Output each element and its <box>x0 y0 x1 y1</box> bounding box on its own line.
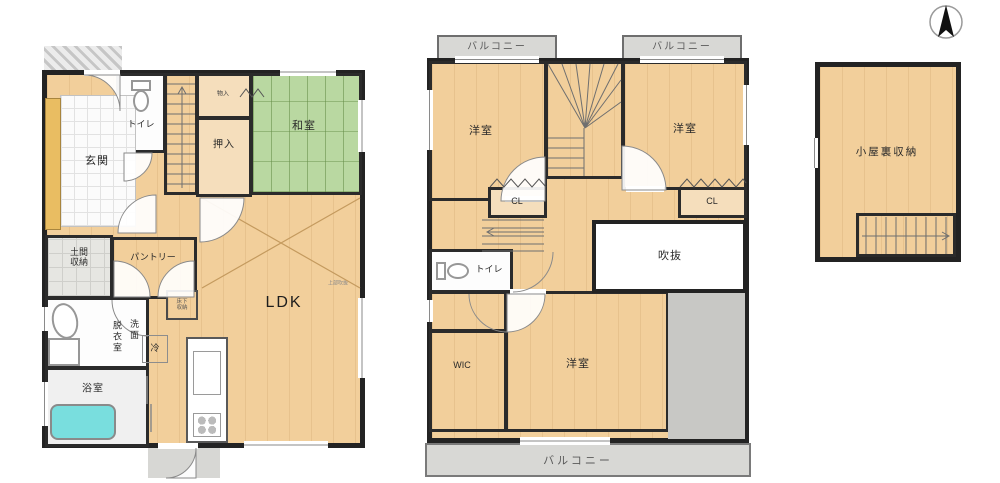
washing-machine-icon <box>48 338 80 366</box>
back-porch <box>148 448 220 478</box>
label-bedroom-right: 洋室 <box>673 123 697 135</box>
backdoor-gap <box>158 443 198 449</box>
label-toilet-1f: トイレ <box>127 120 154 130</box>
attic-stairs <box>856 213 956 257</box>
staircase-2f <box>545 61 624 179</box>
label-cl-left: CL <box>511 197 523 207</box>
window-ldk-bottom <box>244 441 328 449</box>
wic-anteroom <box>429 291 507 332</box>
label-balcony-top-right: バルコニー <box>652 42 712 53</box>
label-balcony-top-left: バルコニー <box>467 42 527 53</box>
label-monoire: 物入 <box>217 92 229 99</box>
north-arrow-icon <box>926 2 966 42</box>
entrance-door-gap <box>84 70 120 76</box>
window-wic-left <box>426 300 433 322</box>
closet-oshiire <box>196 117 252 197</box>
label-wic: WIC <box>453 361 471 371</box>
window-washitsu-right <box>358 100 366 152</box>
window-bedroom-right-side <box>743 85 750 145</box>
compass <box>926 2 966 42</box>
staircase-1f <box>164 73 198 195</box>
label-balcony-bottom: バルコニー <box>543 455 613 467</box>
toilet-tank-icon-2f <box>436 262 446 280</box>
label-pantry: パントリー <box>130 253 175 263</box>
bedroom-bottom-door-gap <box>510 289 546 295</box>
toilet-bowl-icon <box>133 90 149 112</box>
label-washitsu: 和室 <box>292 120 316 132</box>
label-attic-storage: 小屋裏収納 <box>856 147 919 159</box>
label-genkan: 玄関 <box>85 155 109 167</box>
label-datsuishitsu: 脱衣室 <box>111 321 121 354</box>
window-attic-left <box>811 138 818 168</box>
window-ldk-right <box>358 298 366 378</box>
window-bedroom-bottom <box>520 437 610 445</box>
bathtub <box>50 404 116 440</box>
room-washitsu <box>250 73 362 195</box>
shoe-cabinet <box>45 98 61 230</box>
label-fridge: 冷 <box>150 344 159 354</box>
room-wic <box>429 330 507 432</box>
label-senmen: 洗面 <box>128 319 138 341</box>
label-bedroom-left: 洋室 <box>469 125 493 137</box>
window-bedroom-left-side <box>426 90 433 150</box>
label-void-note: 上部吹抜 <box>328 281 348 287</box>
window-washitsu-top <box>280 68 336 76</box>
label-doma-storage: 土間収納 <box>67 248 91 268</box>
label-underfloor-storage: 床下収納 <box>175 299 189 311</box>
label-toilet-2f: トイレ <box>475 265 502 275</box>
label-cl-right: CL <box>706 197 718 207</box>
label-bath: 浴室 <box>82 384 104 395</box>
window-bedroom-right-top <box>640 56 724 63</box>
window-bath-left <box>41 382 48 426</box>
label-oshiire: 押入 <box>213 140 235 151</box>
roof-area <box>668 293 745 439</box>
label-ldk: LDK <box>265 294 302 312</box>
toilet-bowl-icon-2f <box>447 263 469 279</box>
kitchen-stove-icon <box>193 413 221 437</box>
label-bedroom-bottom: 洋室 <box>566 358 590 370</box>
floorplan-page: 玄関 トイレ 物入 押入 和室 LDK 土間収納 パントリー 洗面 脱衣室 冷 … <box>0 0 1000 483</box>
bedroom-right-door-gap <box>626 186 664 192</box>
kitchen-sink-icon <box>193 351 221 395</box>
window-bedroom-left-top <box>455 56 539 63</box>
window-washroom-left <box>41 307 48 331</box>
label-void: 吹抜 <box>658 250 682 262</box>
